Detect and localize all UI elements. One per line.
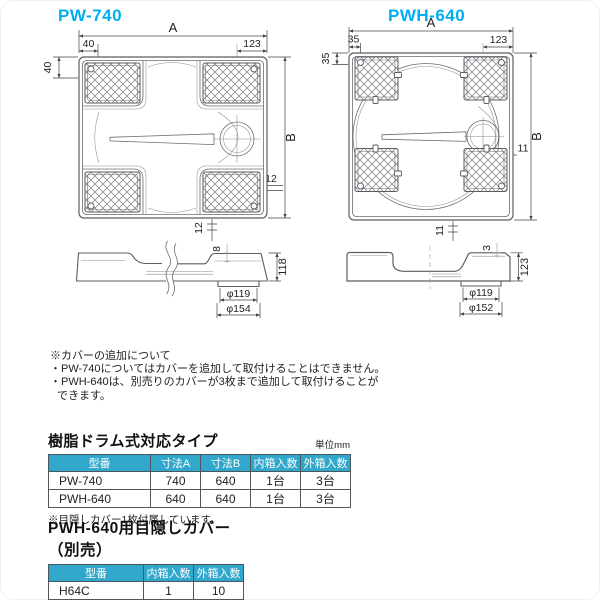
pw740-dim-top-left: 40 <box>83 38 95 50</box>
cell-inner-qty: 1台 <box>251 490 301 508</box>
cover-notes: ※カバーの追加について ・PW-740についてはカバーを追加して取付けることはで… <box>50 350 450 403</box>
cell-inner-qty: 1台 <box>251 472 301 490</box>
pw740-dim-b: B <box>283 133 298 142</box>
col-header-inner-qty: 内箱入数 <box>251 455 301 472</box>
notes-line-1: ・PW-740についてはカバーを追加して取付けることはできません。 <box>50 363 450 376</box>
pwh640-drawing: A 35 123 35 B 11 11 <box>320 0 595 330</box>
pwh640-dia-inner: φ119 <box>469 287 493 299</box>
pw740-dim-rim-bottom: 12 <box>193 222 205 234</box>
spec-table-section: 樹脂ドラム式対応タイプ 単位mm 型番 寸法A 寸法B 内箱入数 外箱入数 PW… <box>48 430 350 527</box>
pwh640-dim-rim-depth: 3 <box>481 245 493 251</box>
pwh640-side-view: 3 123 φ119 φ152 <box>347 243 531 317</box>
spec-sheet-page: PW-740 PWH-640 A 40 123 <box>0 0 600 600</box>
col-header-outer-qty: 外箱入数 <box>301 455 351 472</box>
cover-table-header-row: 型番 内箱入数 外箱入数 <box>49 565 244 582</box>
col-header-dim-b: 寸法B <box>201 455 251 472</box>
cell-inner-qty: 1 <box>144 582 194 600</box>
col-header-inner-qty: 内箱入数 <box>144 565 194 582</box>
pw740-dim-left: 40 <box>42 62 54 74</box>
cell-model: PW-740 <box>49 472 151 490</box>
cell-outer-qty: 3台 <box>301 472 351 490</box>
cover-table-section: PWH-640用目隠しカバー（別売） 型番 内箱入数 外箱入数 H64C 1 1… <box>48 516 243 600</box>
pw740-dia-outer: φ154 <box>226 303 250 315</box>
pw740-dim-rim-depth: 8 <box>211 246 223 252</box>
pwh640-dim-a: A <box>427 15 436 30</box>
spec-table-header-row: 型番 寸法A 寸法B 内箱入数 外箱入数 <box>49 455 351 472</box>
cell-model: H64C <box>49 582 144 600</box>
pwh640-dim-rim-right: 11 <box>518 143 529 155</box>
pw740-dia-inner: φ119 <box>227 288 251 300</box>
pw740-drawing: A 40 123 40 B 12 12 <box>15 0 305 330</box>
table-row: H64C 1 10 <box>49 582 244 600</box>
spec-table: 型番 寸法A 寸法B 内箱入数 外箱入数 PW-740 740 640 1台 3… <box>48 454 351 508</box>
pw740-dim-top-right: 123 <box>243 38 261 50</box>
notes-line-2: ・PWH-640は、別売りのカバーが3枚まで追加して取付けることが <box>50 376 450 389</box>
break-lines <box>166 241 178 296</box>
pw740-side-view: 8 118 φ119 φ154 <box>77 241 290 318</box>
cell-model: PWH-640 <box>49 490 151 508</box>
pwh640-top-view: A 35 123 35 B 11 11 <box>320 15 544 241</box>
pw740-top-view: A 40 123 40 B 12 12 <box>42 20 298 241</box>
spec-table-title: 樹脂ドラム式対応タイプ <box>48 430 218 451</box>
pwh640-dia-outer: φ152 <box>469 302 493 314</box>
col-header-dim-a: 寸法A <box>151 455 201 472</box>
pw740-dim-height: 118 <box>277 258 289 276</box>
pw740-dim-a: A <box>169 20 178 35</box>
pwh640-dim-b: B <box>529 132 544 141</box>
pwh640-dim-height: 123 <box>519 258 531 276</box>
col-header-model: 型番 <box>49 455 151 472</box>
cell-dim-a: 740 <box>151 472 201 490</box>
table-row: PWH-640 640 640 1台 3台 <box>49 490 351 508</box>
pwh640-dim-rim-bottom: 11 <box>434 225 446 236</box>
cell-dim-a: 640 <box>151 490 201 508</box>
col-header-outer-qty: 外箱入数 <box>194 565 244 582</box>
notes-title: ※カバーの追加について <box>50 350 450 363</box>
cell-outer-qty: 3台 <box>301 490 351 508</box>
pwh640-dim-top-left: 35 <box>348 34 360 46</box>
unit-label: 単位mm <box>315 437 350 451</box>
pwh640-dim-left: 35 <box>320 53 332 65</box>
cell-dim-b: 640 <box>201 472 251 490</box>
cell-dim-b: 640 <box>201 490 251 508</box>
cover-table: 型番 内箱入数 外箱入数 H64C 1 10 <box>48 564 244 600</box>
cover-table-title: PWH-640用目隠しカバー（別売） <box>48 516 243 560</box>
notes-line-3: できます。 <box>50 390 450 403</box>
table-row: PW-740 740 640 1台 3台 <box>49 472 351 490</box>
pwh640-dim-top-right: 123 <box>490 34 508 46</box>
col-header-model: 型番 <box>49 565 144 582</box>
cell-outer-qty: 10 <box>194 582 244 600</box>
